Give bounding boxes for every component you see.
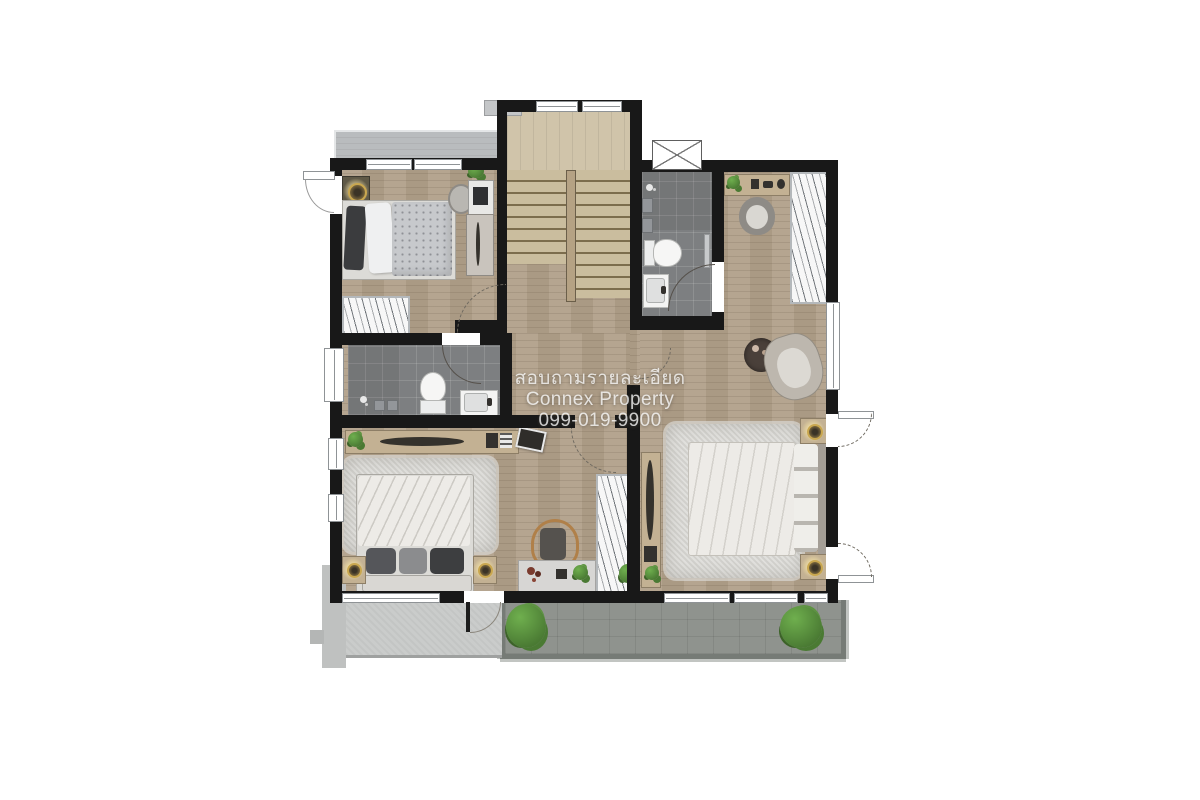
window-stair-north-a xyxy=(536,101,578,112)
watermark-line1: สอบถามรายละเอียด xyxy=(488,368,712,389)
desk-decor-flowers xyxy=(527,567,535,575)
door-gap-master-east-bottom xyxy=(826,547,838,579)
laptop-icon xyxy=(472,186,489,206)
window-bedroom2-west-b xyxy=(328,494,344,522)
wall-bathroom1-south xyxy=(630,316,724,330)
window-bedroom1-north-a xyxy=(366,159,412,170)
headboard-master xyxy=(818,440,826,556)
balcony-plant-right-icon xyxy=(780,606,822,648)
plant-icon-shelf-bedroom2 xyxy=(348,432,363,447)
window-bedroom2-south xyxy=(342,593,440,603)
door-swing-master-east-bottom xyxy=(838,543,872,577)
watermark-line3: 099-019-9900 xyxy=(488,410,712,431)
table-lamp-icon-master-bottom xyxy=(807,560,823,576)
desk-decor-items xyxy=(556,569,567,579)
door-swing-master-east-top xyxy=(838,413,872,447)
bath-shelf-bathroom1-b xyxy=(642,218,653,233)
faucet-icon-bathroom1 xyxy=(661,286,666,294)
bath-shelf-bathroom1-a xyxy=(642,198,653,213)
toilet-icon-bathroom1 xyxy=(653,239,682,267)
console-decor-master xyxy=(646,460,654,540)
stair-flight-right xyxy=(574,170,630,298)
wardrobe-master-closet xyxy=(790,172,830,304)
door-gap-master-east-top xyxy=(826,414,838,447)
vanity-decor-c xyxy=(777,179,785,189)
window-stair-north-b xyxy=(582,101,622,112)
bath-shelf-bathroom2-b xyxy=(387,400,398,411)
towel-bar-bathroom1 xyxy=(704,234,710,268)
console-items-master xyxy=(644,546,657,562)
cabinet-bedroom1 xyxy=(466,214,494,276)
plant-icon-console-master xyxy=(645,566,659,580)
watermark: สอบถามรายละเอียด Connex Property 099-019… xyxy=(488,368,712,431)
plant-icon-desk-bedroom2 xyxy=(573,565,588,580)
table-lamp-icon-bedroom2-left xyxy=(347,563,362,578)
window-master-south-c xyxy=(804,593,828,603)
pillow-white-bedroom1 xyxy=(365,202,396,274)
stair-railing xyxy=(566,170,576,302)
table-lamp-icon-master-top xyxy=(807,424,823,440)
window-bedroom2-west-a xyxy=(328,438,344,470)
window-master-south-b xyxy=(734,593,798,603)
toilet-tank-bathroom2 xyxy=(420,400,446,414)
table-lamp-icon-bedroom2-right xyxy=(478,563,493,578)
stair-flight-left xyxy=(507,170,566,264)
window-bathroom2-west xyxy=(324,348,344,402)
door-swing-bedroom1-west xyxy=(305,179,334,213)
sink-basin-bathroom2 xyxy=(464,393,488,412)
desk-chair-seat-bedroom2 xyxy=(540,528,566,560)
toilet-icon-bathroom2 xyxy=(420,372,446,402)
window-master-south-a xyxy=(664,593,730,603)
stair-landing xyxy=(507,112,630,170)
vanity-decor-a xyxy=(751,179,759,189)
wall-bathroom2-north xyxy=(330,333,512,345)
window-bathroom1-north xyxy=(652,140,702,170)
pillow-bedroom2-a xyxy=(366,548,396,574)
floor-plan-canvas: สอบถามรายละเอียด Connex Property 099-019… xyxy=(0,0,1200,800)
window-master-east xyxy=(826,302,840,390)
cabinet-handle xyxy=(476,222,480,266)
vanity-chair-cushion xyxy=(746,205,768,229)
roof-tab xyxy=(310,630,324,644)
bed-bench-bedroom2 xyxy=(362,575,472,592)
duvet-master xyxy=(688,442,796,556)
wall-bathroom1-west xyxy=(630,160,642,330)
vanity-decor-b xyxy=(763,181,773,188)
pillow-bedroom2-b xyxy=(399,548,427,574)
wardrobe-bedroom1 xyxy=(342,296,410,336)
plant-icon-vanity xyxy=(727,176,740,189)
watermark-line2: Connex Property xyxy=(488,389,712,410)
pillows-master xyxy=(794,444,818,552)
shelf-stack-b xyxy=(500,433,512,448)
door-gap-bathroom2 xyxy=(442,333,480,345)
duvet-bedroom2 xyxy=(358,476,470,546)
bath-shelf-bathroom2-a xyxy=(374,400,385,411)
shower-head-icon-bathroom2 xyxy=(360,396,367,403)
pillow-dark-bedroom1 xyxy=(343,206,366,271)
balcony-plant-left-icon xyxy=(506,604,546,648)
shelf-decor-bedroom2 xyxy=(380,437,464,446)
shelf-stack-a xyxy=(486,433,498,448)
shower-head-icon-bathroom1 xyxy=(646,184,653,191)
window-bedroom1-north-b xyxy=(414,159,462,170)
pillow-bedroom2-c xyxy=(430,548,464,574)
duvet-bedroom1 xyxy=(392,202,452,276)
side-table-decor xyxy=(752,345,759,352)
